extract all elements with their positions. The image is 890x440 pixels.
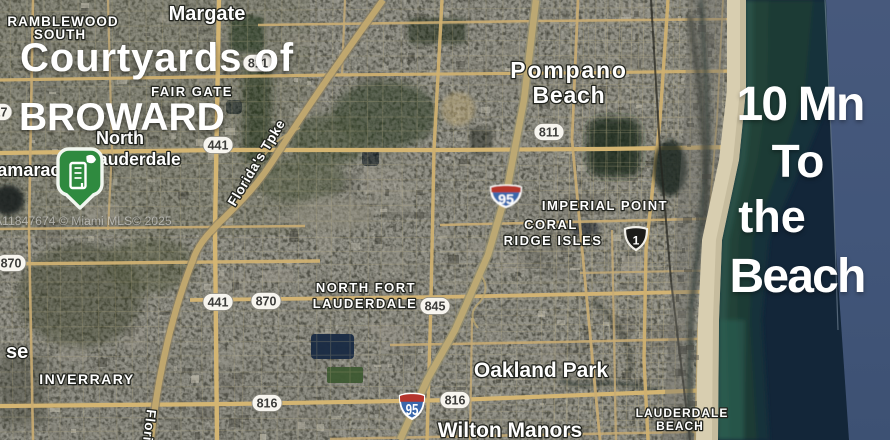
svg-text:IMPERIAL POINT: IMPERIAL POINT: [542, 198, 668, 213]
svg-text:the: the: [738, 191, 806, 242]
svg-text:Pompano: Pompano: [510, 57, 627, 83]
svg-text:LAUDERDALE: LAUDERDALE: [636, 406, 729, 420]
svg-text:Tamarac: Tamarac: [0, 160, 60, 180]
svg-text:Oakland Park: Oakland Park: [474, 359, 609, 382]
svg-text:se: se: [6, 341, 28, 363]
svg-text:CORAL: CORAL: [524, 217, 578, 232]
svg-text:A11847674 © Miami MLS© 2025: A11847674 © Miami MLS© 2025: [0, 214, 172, 228]
svg-text:LAUDERDALE: LAUDERDALE: [313, 296, 418, 311]
svg-text:1: 1: [633, 234, 640, 248]
svg-text:870: 870: [1, 257, 22, 271]
svg-text:BROWARD: BROWARD: [19, 96, 225, 139]
svg-text:816: 816: [257, 397, 278, 411]
svg-text:845: 845: [425, 300, 446, 314]
svg-text:95: 95: [406, 402, 419, 419]
svg-text:10 Mn: 10 Mn: [736, 78, 863, 131]
svg-text:Margate: Margate: [169, 3, 246, 25]
svg-text:Wilton Manors: Wilton Manors: [438, 419, 582, 440]
svg-text:811: 811: [539, 126, 559, 140]
svg-text:BEACH: BEACH: [656, 419, 704, 433]
svg-text:441: 441: [208, 139, 229, 153]
svg-text:95: 95: [498, 191, 514, 207]
svg-text:RIDGE ISLES: RIDGE ISLES: [504, 233, 603, 248]
svg-text:441: 441: [208, 296, 229, 310]
svg-text:INVERRARY: INVERRARY: [39, 371, 134, 387]
svg-text:816: 816: [445, 394, 466, 408]
svg-text:Courtyards of: Courtyards of: [20, 36, 294, 80]
svg-text:870: 870: [256, 295, 277, 309]
svg-text:Beach: Beach: [532, 82, 605, 108]
svg-text:To: To: [772, 135, 825, 187]
svg-text:817: 817: [0, 106, 7, 120]
svg-text:Beach: Beach: [729, 250, 864, 303]
svg-text:NORTH FORT: NORTH FORT: [316, 280, 416, 295]
